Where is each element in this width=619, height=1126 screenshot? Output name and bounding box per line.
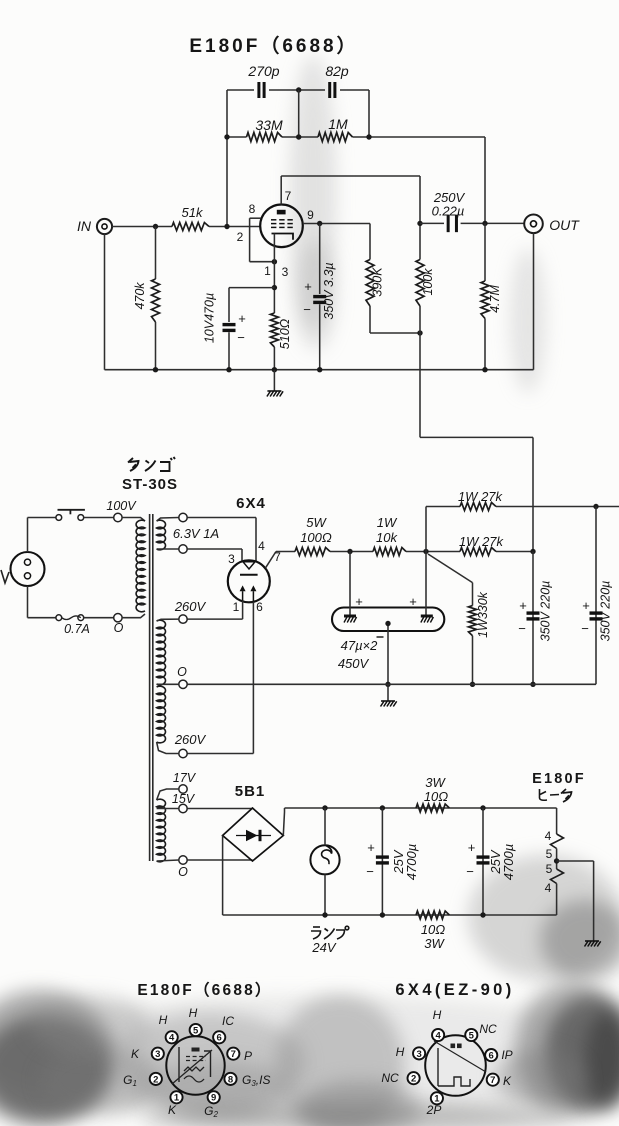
svg-text:2: 2 — [153, 1074, 158, 1085]
svg-text:100Ω: 100Ω — [300, 530, 332, 545]
svg-text:6: 6 — [489, 1051, 494, 1062]
svg-text:3: 3 — [228, 552, 235, 566]
svg-text:270p: 270p — [247, 63, 279, 79]
svg-text:IC: IC — [222, 1014, 234, 1028]
svg-text:82p: 82p — [325, 63, 349, 79]
svg-text:P: P — [244, 1049, 252, 1063]
svg-text:450V: 450V — [338, 656, 370, 671]
svg-text:5: 5 — [546, 847, 553, 861]
svg-text:510Ω: 510Ω — [278, 318, 292, 349]
svg-text:1M: 1M — [328, 116, 348, 132]
svg-text:K: K — [503, 1074, 512, 1088]
svg-text:+: + — [355, 594, 363, 609]
svg-text:7: 7 — [231, 1049, 236, 1060]
svg-text:−: − — [581, 621, 589, 636]
svg-text:6X4: 6X4 — [236, 495, 266, 512]
svg-text:3: 3 — [155, 1049, 160, 1060]
svg-text:5: 5 — [546, 862, 553, 876]
svg-text:−: − — [518, 621, 526, 636]
svg-text:1: 1 — [233, 600, 240, 614]
svg-text:24V: 24V — [311, 940, 336, 955]
svg-text:390K: 390K — [371, 267, 385, 297]
svg-text:4: 4 — [258, 539, 265, 553]
svg-text:G3,IS: G3,IS — [242, 1073, 270, 1088]
svg-text:−: − — [366, 864, 374, 879]
svg-text:−: − — [303, 302, 311, 317]
svg-text:3W: 3W — [424, 936, 445, 951]
svg-text:7: 7 — [490, 1075, 495, 1086]
svg-text:3: 3 — [282, 265, 289, 279]
svg-text:100k: 100k — [421, 268, 435, 296]
svg-text:−: − — [466, 864, 474, 879]
svg-text:4: 4 — [435, 1030, 441, 1041]
svg-text:O: O — [178, 865, 188, 879]
svg-text:1W 27k: 1W 27k — [458, 489, 504, 504]
svg-text:1W 27k: 1W 27k — [459, 534, 505, 549]
svg-text:+: + — [468, 840, 476, 855]
svg-text:5B1: 5B1 — [235, 783, 266, 800]
svg-text:4: 4 — [545, 829, 552, 843]
svg-text:IN: IN — [77, 218, 92, 234]
svg-text:O: O — [177, 665, 187, 679]
svg-text:350V 220µ: 350V 220µ — [599, 581, 613, 642]
svg-text:33M: 33M — [255, 117, 283, 133]
svg-text:3: 3 — [416, 1049, 421, 1060]
svg-text:K: K — [131, 1047, 140, 1061]
svg-text:IP: IP — [501, 1048, 512, 1062]
svg-text:−: − — [237, 330, 245, 345]
svg-text:E180F: E180F — [532, 771, 586, 787]
svg-text:E180F（6688）: E180F（6688） — [189, 34, 358, 57]
svg-text:2: 2 — [411, 1074, 416, 1085]
svg-text:6.3V 1A: 6.3V 1A — [173, 526, 219, 541]
svg-text:6: 6 — [217, 1033, 222, 1044]
svg-text:7: 7 — [285, 189, 292, 203]
svg-text:8: 8 — [249, 202, 256, 216]
svg-text:+: + — [409, 594, 417, 609]
svg-text:3W: 3W — [425, 775, 446, 790]
svg-text:0.22µ: 0.22µ — [432, 204, 465, 219]
svg-text:NC: NC — [381, 1071, 399, 1085]
svg-text:NC: NC — [479, 1022, 497, 1036]
svg-text:10k: 10k — [376, 530, 398, 545]
svg-text:1: 1 — [264, 264, 271, 278]
svg-text:8: 8 — [228, 1074, 233, 1085]
svg-text:H: H — [396, 1045, 405, 1059]
svg-text:100V: 100V — [106, 499, 137, 513]
svg-text:4: 4 — [545, 881, 552, 895]
svg-text:10Ω: 10Ω — [421, 922, 445, 937]
svg-text:4: 4 — [169, 1033, 175, 1044]
svg-text:5W: 5W — [306, 515, 327, 530]
svg-text:E180F（6688）: E180F（6688） — [137, 981, 272, 999]
svg-text:9: 9 — [211, 1093, 216, 1104]
svg-text:10V470µ: 10V470µ — [203, 293, 217, 343]
svg-text:470k: 470k — [133, 282, 147, 310]
svg-text:4.7M: 4.7M — [488, 285, 502, 313]
svg-text:+: + — [367, 840, 375, 855]
svg-text:47µ×2: 47µ×2 — [341, 638, 379, 653]
svg-text:H: H — [433, 1008, 442, 1022]
svg-text:1W330k: 1W330k — [476, 591, 490, 638]
svg-text:10Ω: 10Ω — [424, 789, 448, 804]
svg-text:G1: G1 — [123, 1073, 137, 1088]
svg-text:OUT: OUT — [549, 217, 580, 233]
svg-text:350V 220µ: 350V 220µ — [539, 581, 553, 642]
svg-text:260V: 260V — [174, 732, 207, 747]
svg-text:5: 5 — [469, 1030, 475, 1041]
svg-text:5: 5 — [193, 1025, 199, 1036]
svg-text:H: H — [159, 1013, 168, 1027]
svg-text:1W: 1W — [377, 515, 398, 530]
svg-text:2: 2 — [237, 230, 244, 244]
svg-text:ST-30S: ST-30S — [122, 476, 178, 493]
svg-text:+: + — [238, 311, 246, 326]
svg-text:K: K — [168, 1103, 177, 1117]
svg-text:51k: 51k — [182, 205, 204, 220]
svg-text:G2: G2 — [204, 1104, 218, 1119]
svg-text:0.7A: 0.7A — [64, 622, 90, 636]
svg-text:+: + — [519, 598, 527, 613]
svg-text:9: 9 — [307, 208, 314, 222]
svg-text:+: + — [304, 279, 312, 294]
svg-text:4700µ: 4700µ — [501, 844, 516, 880]
svg-text:2P: 2P — [426, 1103, 442, 1117]
svg-text:17V: 17V — [173, 771, 197, 785]
svg-text:+: + — [582, 598, 590, 613]
svg-text:O: O — [114, 621, 124, 635]
svg-text:4700µ: 4700µ — [404, 844, 419, 880]
svg-text:6: 6 — [256, 600, 263, 614]
svg-text:350V 3.3µ: 350V 3.3µ — [322, 262, 336, 319]
svg-text:260V: 260V — [174, 599, 207, 614]
svg-text:H: H — [189, 1006, 198, 1020]
svg-text:6X4(EZ-90): 6X4(EZ-90) — [395, 981, 514, 999]
